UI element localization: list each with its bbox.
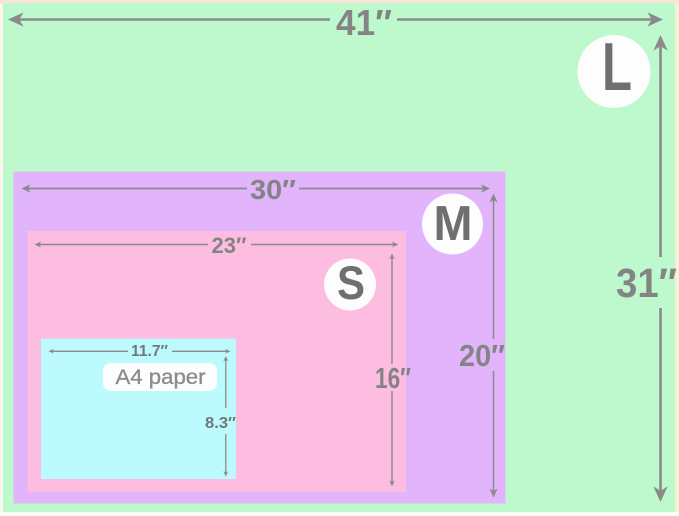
svg-text:S: S — [337, 256, 365, 309]
svg-text:16″: 16″ — [375, 363, 411, 395]
svg-text:41″: 41″ — [336, 2, 392, 43]
svg-text:11.7″: 11.7″ — [131, 343, 168, 360]
svg-text:31″: 31″ — [616, 260, 677, 306]
svg-text:8.3″: 8.3″ — [205, 415, 236, 432]
svg-text:20″: 20″ — [459, 338, 505, 373]
svg-text:30″: 30″ — [250, 174, 296, 205]
svg-text:M: M — [434, 197, 473, 251]
svg-text:L: L — [602, 29, 632, 105]
svg-text:A4 paper: A4 paper — [116, 366, 206, 389]
svg-text:23″: 23″ — [212, 233, 247, 258]
